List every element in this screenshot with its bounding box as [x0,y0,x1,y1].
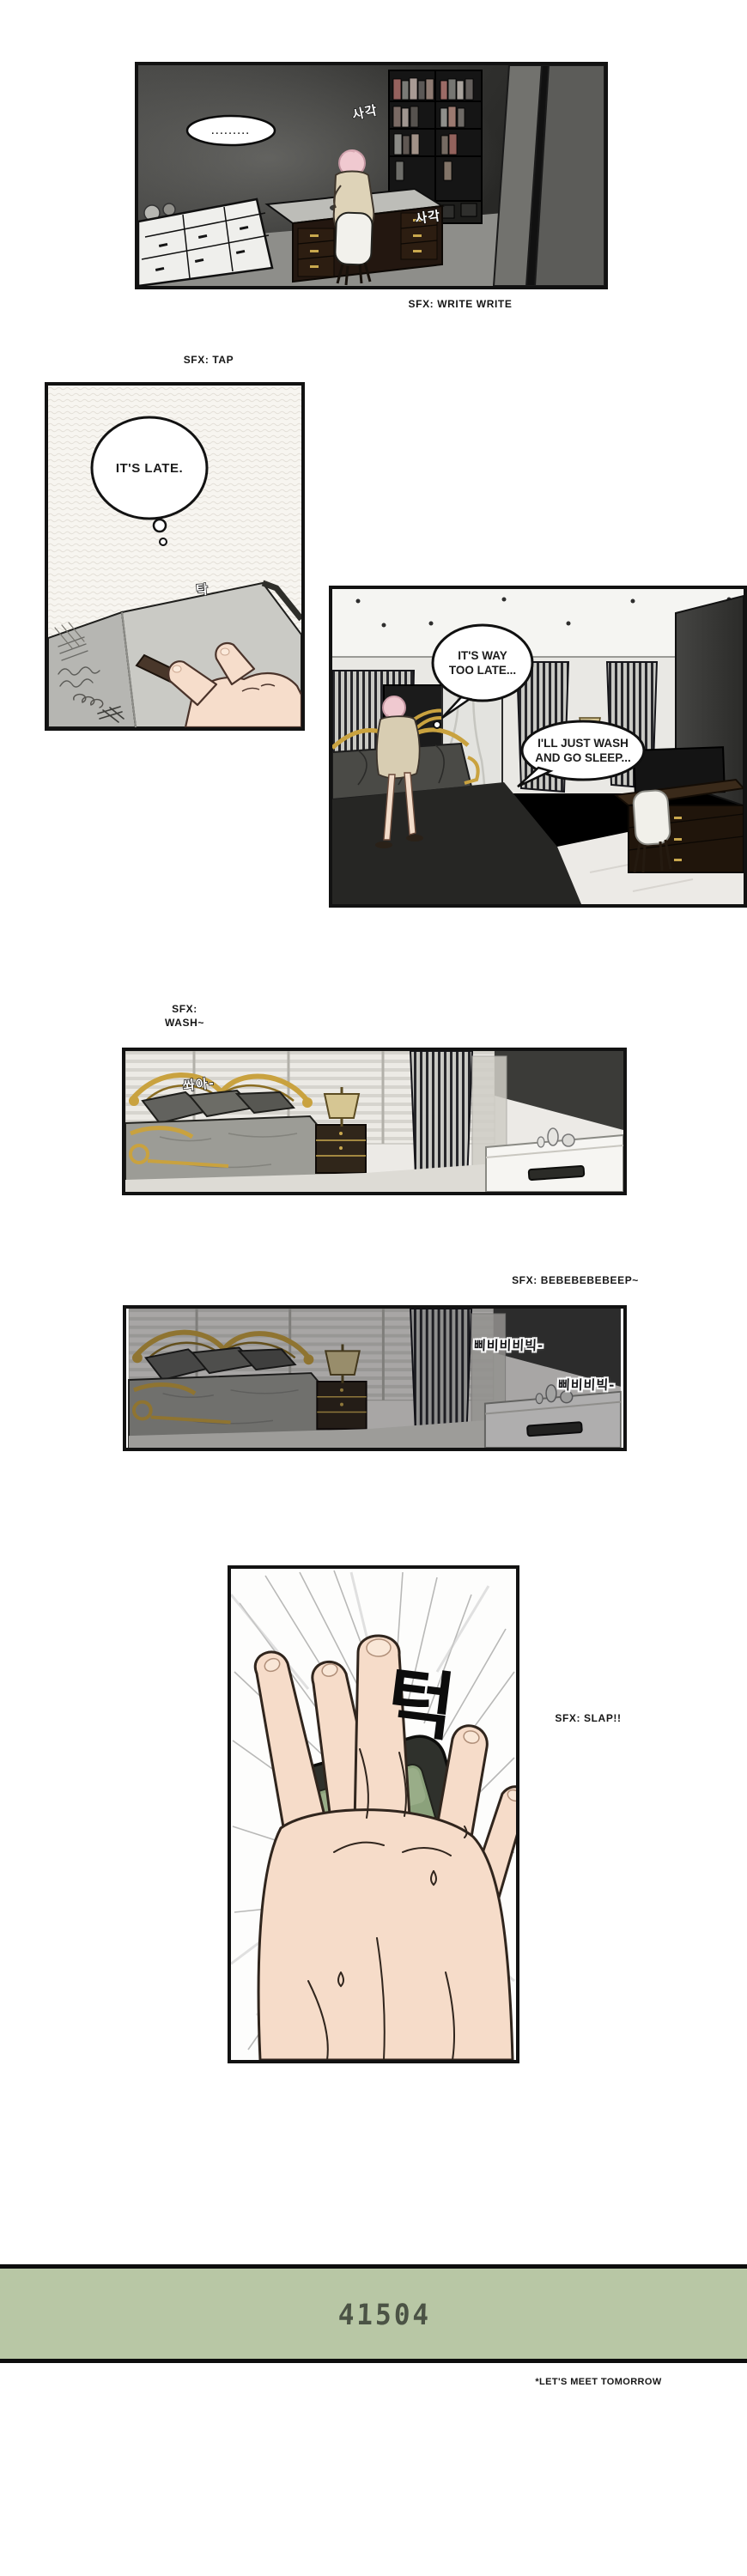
sfx-beep-bubble-1: 삐비비비빅- [474,1336,544,1354]
thought-text: IT'S LATE. [116,461,183,476]
footnote-translation: *LET'S MEET TOMORROW [513,2377,684,2387]
panel-notebook: IT'S LATE. 탁 [45,382,305,731]
ellipsis-text: ......... [211,126,251,137]
clock-digits: 41504 [0,2299,747,2332]
bubble1-line1: IT'S WAY [458,649,507,662]
notebook-art: IT'S LATE. 탁 [48,386,301,727]
panel-bedroom-alarm [123,1305,627,1451]
caption-sfx-wash-line1: SFX: [172,1003,197,1015]
caption-sfx-slap: SFX: SLAP!! [515,1712,661,1726]
study-room-art: ......... 사각 사각 [138,65,604,286]
hand-slap-art: 턱 [231,1569,516,2060]
bubble1-line2: TOO LATE... [449,664,516,677]
caption-sfx-tap: SFX: TAP [140,354,277,368]
pillar [494,65,604,286]
caption-sfx-wash: SFX:WASH~ [129,1003,240,1030]
sfx-tap-kr: 탁 [196,582,210,598]
panel-study-room: ......... 사각 사각 [135,62,608,289]
bedroom-alarm-art [126,1309,623,1448]
clock-display-strip: 41504 [0,2264,747,2363]
caption-sfx-beep: SFX: BEBEBEBEBEEP~ [489,1274,661,1288]
caption-sfx-write: SFX: WRITE WRITE [374,298,546,312]
webtoon-page: ......... 사각 사각 SFX: WRITE WRITE SFX: TA… [0,0,747,2576]
panel-living-room: IT'S WAY TOO LATE... I'LL JUST WASH AND … [329,586,747,908]
caption-sfx-wash-line2: WASH~ [129,1017,240,1030]
sfx-wash-kr: 쏴아- [182,1075,216,1094]
panel-hand-slap: 턱 [228,1565,519,2063]
living-room-art: IT'S WAY TOO LATE... I'LL JUST WASH AND … [332,589,744,904]
speech-bubble-ellipsis: ......... [187,116,275,145]
bubble2-line1: I'LL JUST WASH [537,737,629,750]
panel-bedroom: 쏴아- [122,1048,627,1195]
night-overlay [129,1309,621,1448]
bubble2-line2: AND GO SLEEP... [535,751,631,764]
bedroom-art: 쏴아- [125,1051,623,1192]
sfx-beep-bubble-2: 삐비비빅- [558,1376,616,1394]
sfx-slap-kr: 턱 [382,1658,460,1752]
curtain [410,1051,472,1182]
